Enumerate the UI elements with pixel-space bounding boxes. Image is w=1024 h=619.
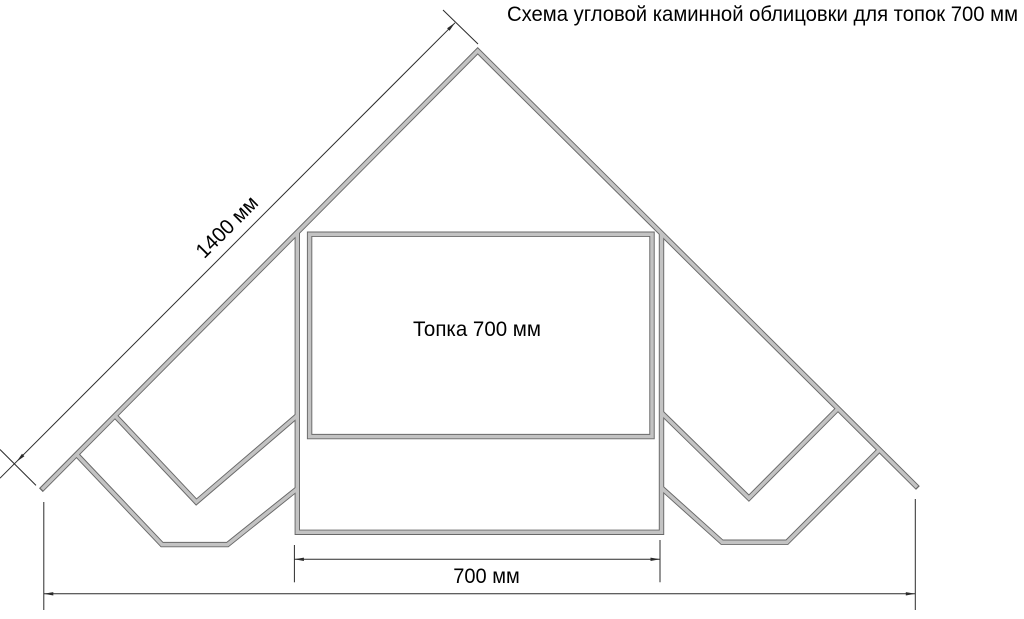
svg-text:700 мм: 700 мм: [453, 565, 520, 588]
svg-text:Схема угловой каминной облицов: Схема угловой каминной облицовки для топ…: [507, 3, 1018, 26]
svg-text:Топка 700 мм: Топка 700 мм: [413, 318, 541, 341]
